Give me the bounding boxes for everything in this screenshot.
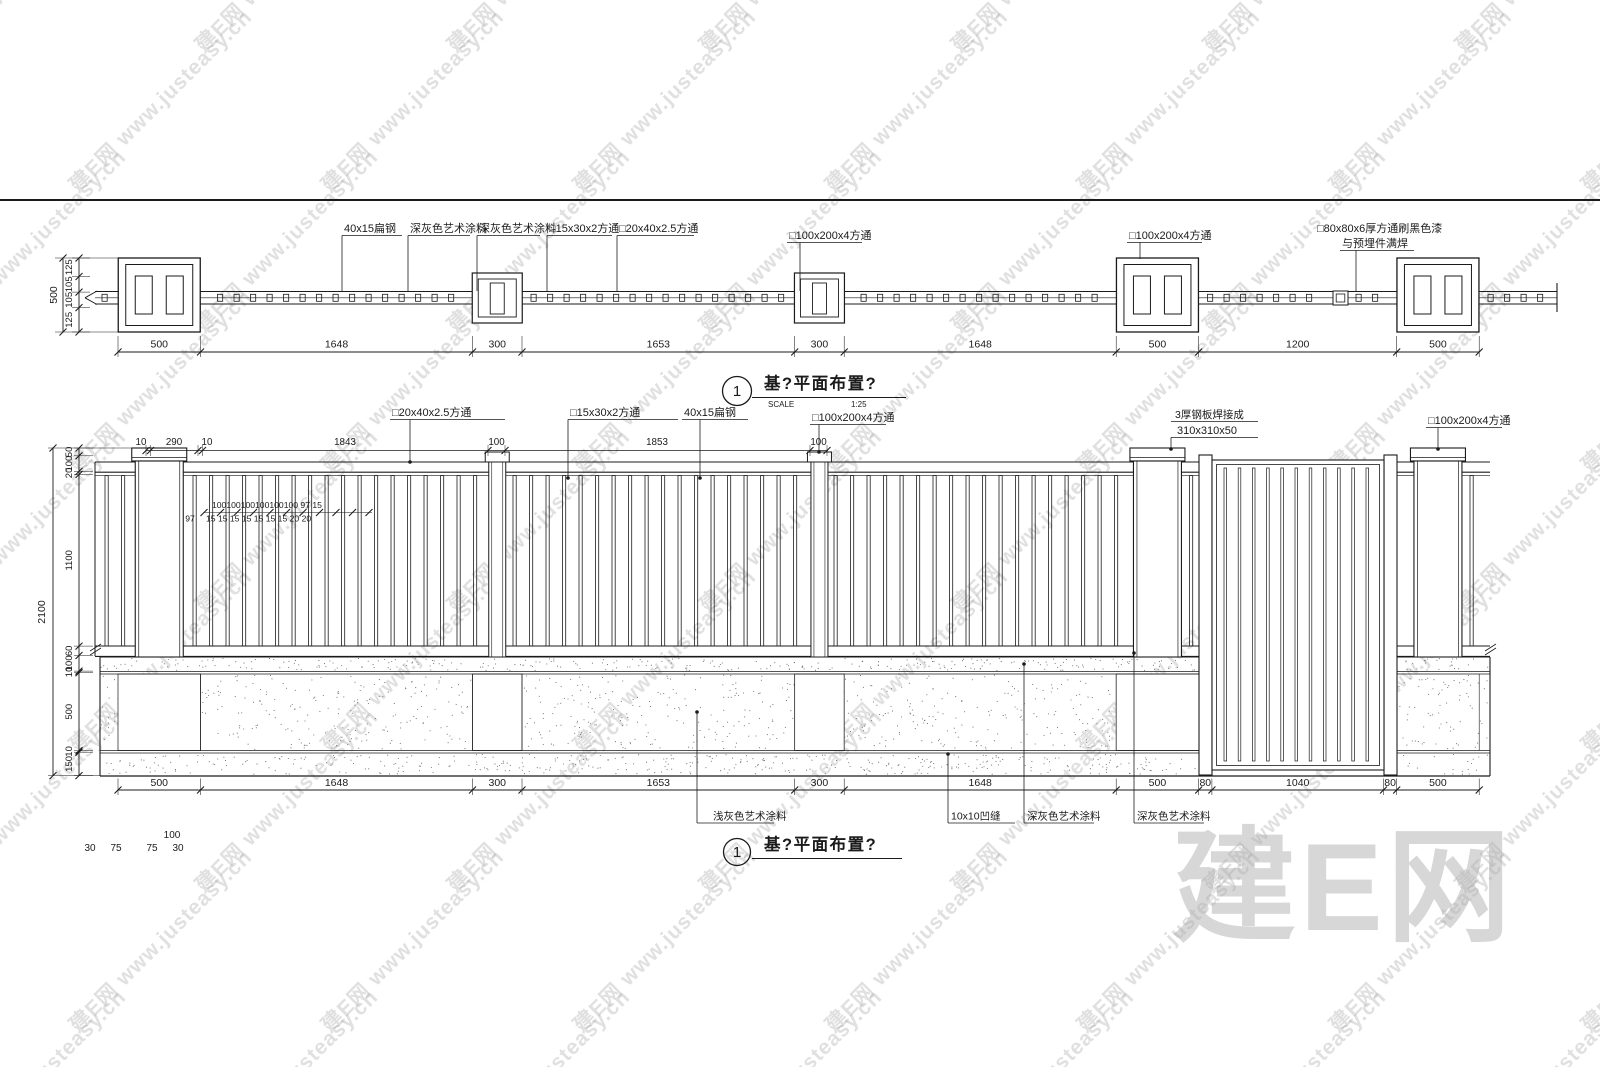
dim-label: 1648 <box>325 339 349 351</box>
dim-label: 500 <box>150 339 168 351</box>
dim-label: 105 <box>64 276 75 292</box>
title-number: 1 <box>733 844 741 861</box>
spacing-dims: 100100100100100100 97 15 <box>212 500 322 510</box>
fence-construction-drawing: 40x15扁钢深灰色艺术涂料深灰色艺术涂料□15x30x2方通□20x40x2.… <box>0 0 1600 1067</box>
callout-label: 40x15扁钢 <box>344 222 396 235</box>
callout-label: 深灰色艺术涂料 <box>1137 810 1211 823</box>
callout-label: 浅灰色艺术涂料 <box>713 810 787 823</box>
dim-label: 80 <box>1384 777 1396 789</box>
dim-label: 1653 <box>647 339 671 351</box>
plan-view: 40x15扁钢深灰色艺术涂料深灰色艺术涂料□15x30x2方通□20x40x2.… <box>48 221 1557 409</box>
callout-label: □100x200x4方通 <box>1129 228 1211 242</box>
dim-label: 1100 <box>64 550 75 570</box>
dim-label: 10 <box>136 437 147 448</box>
callout-label: □15x30x2方通 <box>549 221 619 235</box>
dim-label: 300 <box>811 339 829 351</box>
callout-label: □100x200x4方通 <box>789 228 871 242</box>
dim-label: 300 <box>811 777 829 789</box>
dim-label: 500 <box>1429 339 1447 351</box>
dim-label: 10 <box>64 746 75 757</box>
title-text: 基?平面布置? <box>764 373 877 393</box>
spacing-dims: 15 15 15 15 15 15 15 20 20 <box>206 514 311 524</box>
callout-label: □100x200x4方通 <box>812 410 894 424</box>
callout-label: 40x15扁钢 <box>684 406 736 419</box>
title-number: 1 <box>733 383 741 400</box>
callout-label: □20x40x2.5方通 <box>619 221 698 235</box>
callout-label: □80x80x6厚方通刷黑色漆 <box>1317 221 1442 235</box>
dim-label: 10 <box>202 437 213 448</box>
title-scale: 1:25 <box>851 400 867 409</box>
dim-label: 300 <box>488 339 506 351</box>
dim-label: 105 <box>64 292 75 308</box>
corner-dim: 75 <box>146 843 158 854</box>
dim-label: 1648 <box>325 777 349 789</box>
dim-label: 500 <box>150 777 168 789</box>
dim-label: 60 <box>64 646 75 657</box>
callout-label: □20x40x2.5方通 <box>392 405 471 419</box>
dim-label: 1653 <box>647 777 671 789</box>
dim-label: 150 <box>64 756 75 772</box>
dim-label: 1200 <box>1286 339 1310 351</box>
elevation-view: □20x40x2.5方通□15x30x2方通40x15扁钢□100x200x4方… <box>36 405 1510 866</box>
callout-label: 3厚钢板焊接成 <box>1175 408 1244 421</box>
elevation-title: 1基?平面布置? <box>724 834 903 866</box>
dim-label: 1648 <box>969 777 993 789</box>
callout-label: □15x30x2方通 <box>570 405 640 419</box>
dim-label: 10 <box>64 667 75 678</box>
title-text: 基?平面布置? <box>764 834 877 854</box>
dim-label: 500 <box>1429 777 1447 789</box>
corner-dim: 30 <box>84 843 96 854</box>
spacing-dims: 97 <box>185 514 195 524</box>
dim-label: 20 <box>64 468 75 479</box>
dim-label: 1648 <box>969 339 993 351</box>
dim-label: 125 <box>64 312 75 328</box>
dim-label: 100 <box>488 437 505 448</box>
callout-label: 深灰色艺术涂料 <box>1027 810 1101 823</box>
dim-label: 500 <box>48 286 60 304</box>
dim-label: 500 <box>1149 777 1167 789</box>
dim-label: 80 <box>1199 777 1211 789</box>
callout-label: 310x310x50 <box>1177 425 1237 437</box>
dim-label: 1843 <box>334 437 356 448</box>
corner-dim: 30 <box>172 843 184 854</box>
callout-label: 10x10凹缝 <box>951 810 1001 823</box>
callout-label: □100x200x4方通 <box>1428 413 1510 427</box>
corner-dim: 75 <box>110 843 122 854</box>
plan-title: 1基?平面布置?SCALE1:25 <box>723 373 907 409</box>
dim-label: 500 <box>64 704 75 720</box>
dim-label: 300 <box>488 777 506 789</box>
callout-label: 深灰色艺术涂料 <box>479 221 556 235</box>
dim-label: 2100 <box>36 600 48 624</box>
callout-label: 深灰色艺术涂料 <box>410 221 487 235</box>
gate <box>1199 455 1397 775</box>
callout-label: 与预埋件满焊 <box>1342 236 1408 250</box>
dim-label: 500 <box>1149 339 1167 351</box>
dim-label: 1853 <box>646 437 668 448</box>
dim-label: 290 <box>166 437 183 448</box>
dim-label: 125 <box>64 259 75 275</box>
title-scale: SCALE <box>768 400 794 409</box>
dim-label: 100 <box>810 437 827 448</box>
dim-label: 1040 <box>1286 777 1310 789</box>
drawing-canvas: 建E网 www.justeasy.cn建E网 www.justeasy.cn建E… <box>0 0 1600 1067</box>
corner-dim: 100 <box>164 830 181 841</box>
